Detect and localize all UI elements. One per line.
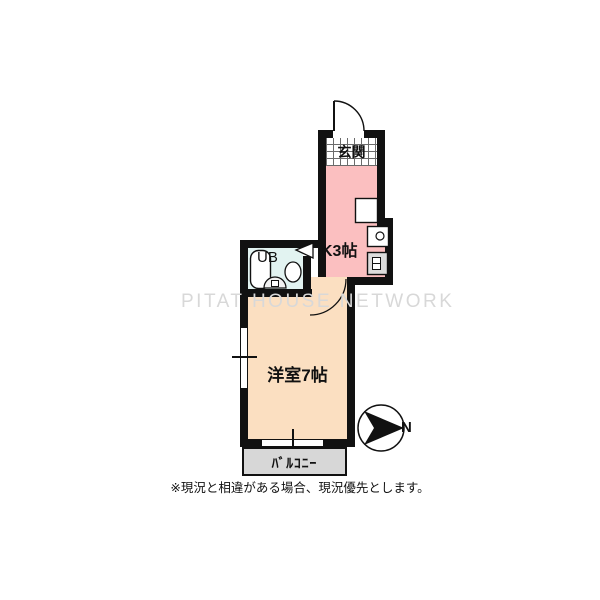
kitchen-floor-ext (377, 226, 385, 277)
balcony-area: ﾊﾞﾙｺﾆｰ (242, 447, 347, 476)
disclaimer-note: ※現況と相違がある場合、現況優先とします。 (0, 477, 600, 496)
window-left (240, 328, 248, 388)
kitchen-label: K3帖 (321, 237, 357, 261)
wall (240, 248, 248, 328)
living-room-label: 洋室7帖 (248, 361, 347, 386)
wall (318, 130, 333, 138)
window-left-tick (232, 356, 257, 358)
entrance-door-icon (334, 101, 364, 131)
wall (364, 130, 385, 138)
north-label: N (401, 419, 412, 436)
watermark: PITAT HOUSE NETWORK (181, 291, 454, 313)
entrance-label: 玄関 (326, 138, 377, 166)
wall (377, 218, 393, 226)
wall (240, 439, 262, 447)
bath-label: UB (257, 249, 278, 266)
floorplan-canvas: ﾊﾞﾙｺﾆｰ (0, 0, 600, 600)
wall (377, 138, 385, 226)
wall (240, 240, 318, 248)
balcony-label: ﾊﾞﾙｺﾆｰ (272, 452, 318, 472)
north-arrow-icon (358, 405, 404, 451)
